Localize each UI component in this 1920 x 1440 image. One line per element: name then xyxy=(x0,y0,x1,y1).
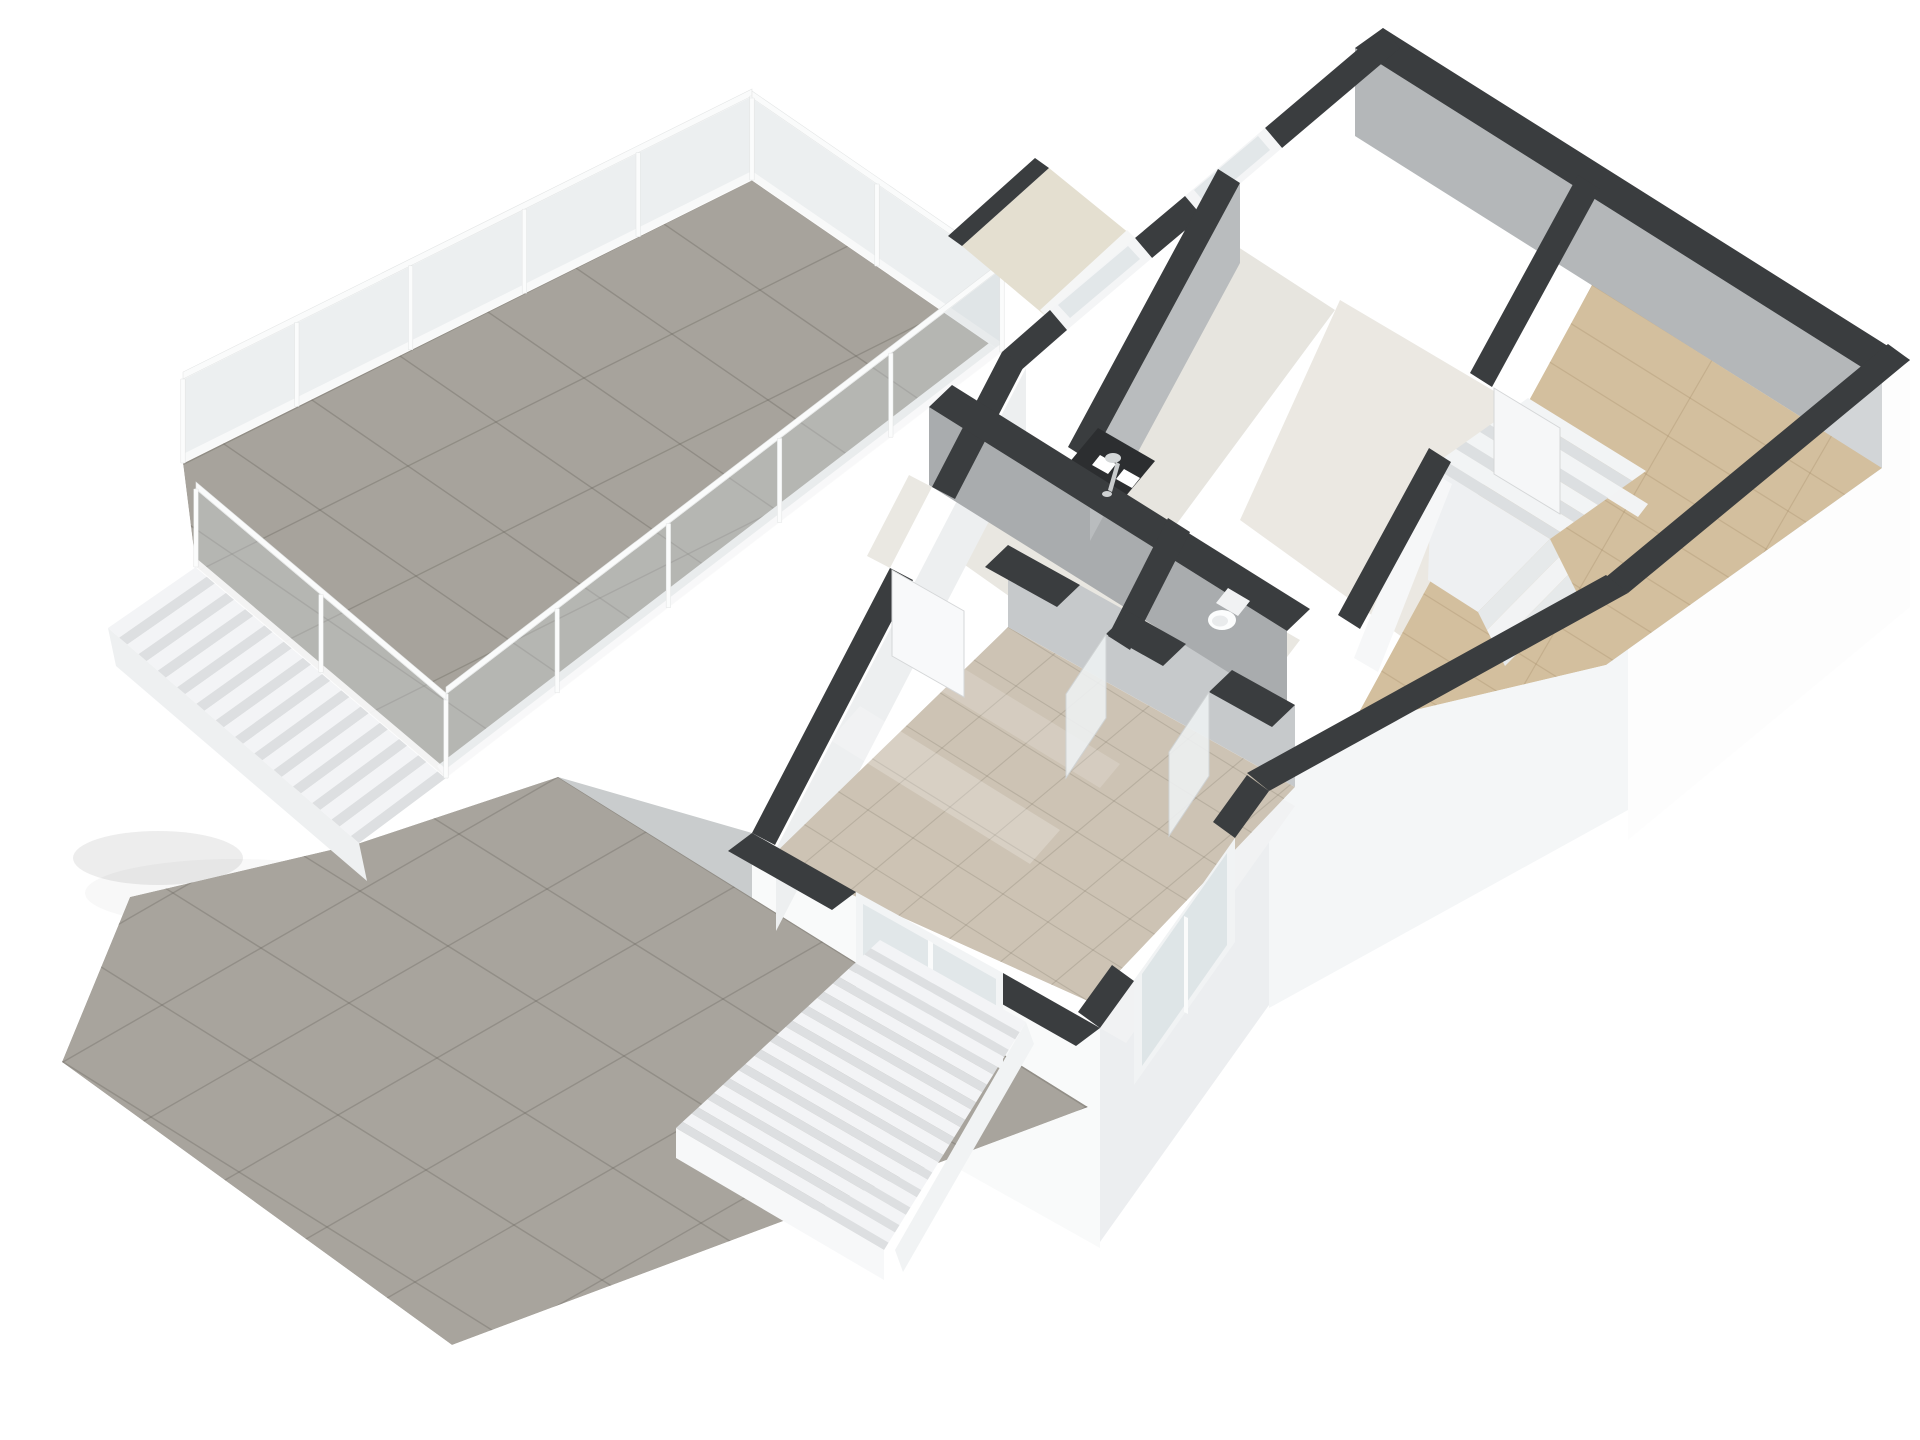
stair-glass-railing-post xyxy=(319,595,323,673)
terrace-railing-se-post xyxy=(777,438,781,522)
terrace-railing-nw-post xyxy=(181,379,185,463)
terrace-railing-se-post xyxy=(889,353,893,437)
terrace-railing-ne-post xyxy=(750,98,754,180)
stair-glass-railing-post xyxy=(194,489,198,567)
terrace-railing-nw-post xyxy=(636,153,640,237)
terrace-railing-se-post xyxy=(666,524,670,608)
ne-wall-niche xyxy=(1616,16,1660,46)
shower-head xyxy=(1105,453,1121,463)
terrace-railing-se-post xyxy=(555,609,559,693)
floor-plan-3d-render xyxy=(0,0,1920,1440)
shower-drain xyxy=(1102,491,1112,497)
stair-glass-railing-post xyxy=(444,700,448,778)
scene xyxy=(0,0,1920,1440)
terrace-railing-ne-post xyxy=(875,184,879,266)
terrace-railing-nw-post xyxy=(408,266,412,350)
toilet-seat xyxy=(1212,616,1228,627)
terrace-railing-nw-post xyxy=(522,209,526,293)
terrace-railing-nw-post xyxy=(295,322,299,406)
terrace-door-threshold xyxy=(867,475,932,568)
step-glass-door-mullion xyxy=(1184,916,1188,1014)
